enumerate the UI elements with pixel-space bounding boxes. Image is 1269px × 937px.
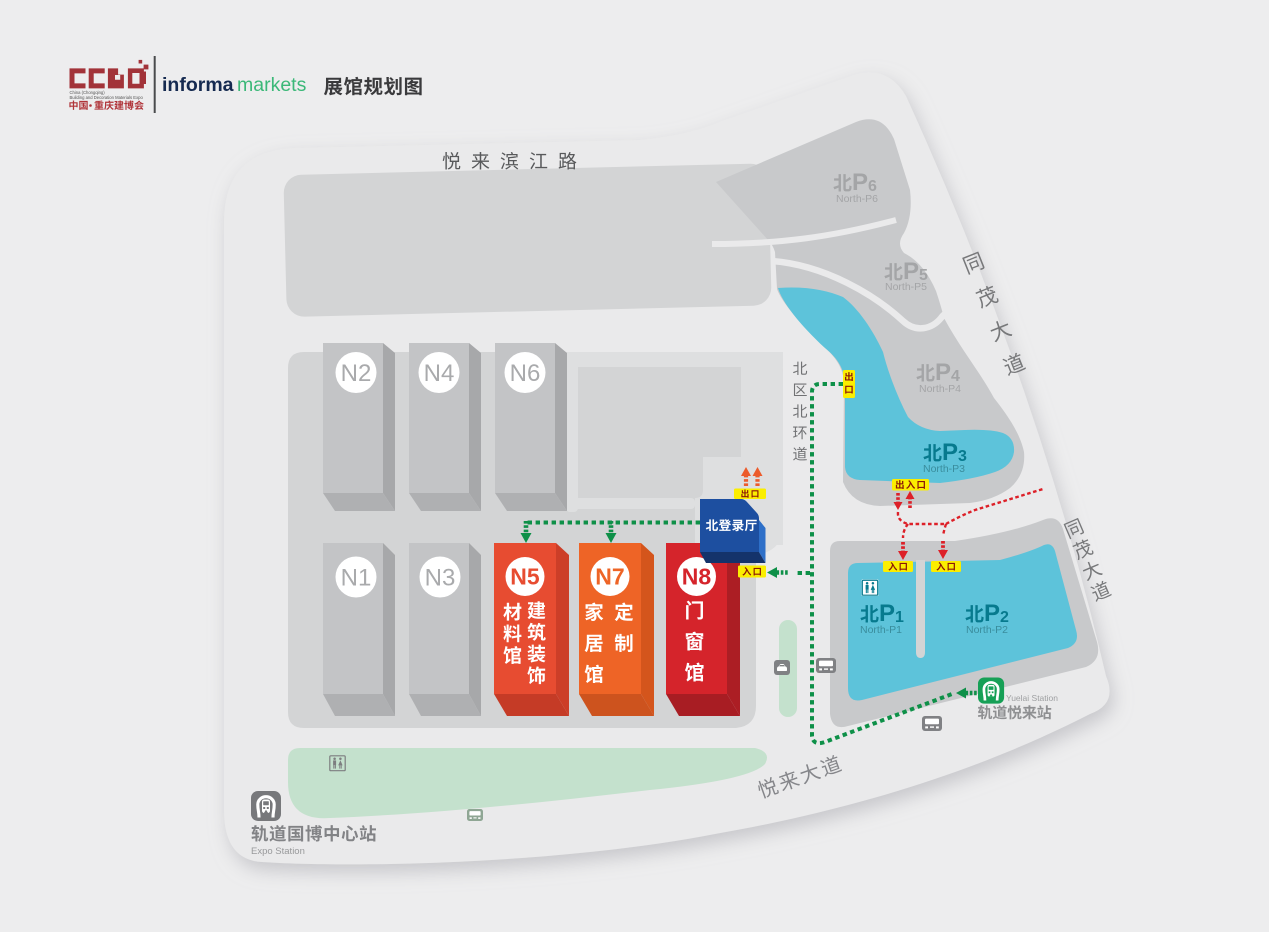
svg-text:North-P6: North-P6	[836, 193, 878, 205]
svg-text:markets: markets	[237, 74, 307, 96]
svg-text:N8: N8	[682, 564, 712, 590]
svg-text:North-P4: North-P4	[919, 383, 961, 395]
svg-text:North-P5: North-P5	[885, 281, 927, 293]
svg-text:N7: N7	[595, 564, 624, 590]
svg-text:P: P	[852, 169, 868, 196]
svg-text:informa: informa	[162, 74, 234, 96]
svg-text:Expo Station: Expo Station	[251, 846, 305, 857]
svg-text:N4: N4	[424, 360, 455, 387]
svg-text:North-P1: North-P1	[860, 624, 902, 636]
svg-text:N5: N5	[510, 564, 540, 590]
svg-text:Building and Decoration Materi: Building and Decoration Materials Expo	[70, 95, 144, 100]
svg-text:N3: N3	[425, 565, 456, 592]
svg-text:Yuelai Station: Yuelai Station	[1006, 693, 1058, 703]
svg-text:North-P2: North-P2	[966, 624, 1008, 636]
svg-text:North-P3: North-P3	[923, 463, 965, 475]
svg-text:N6: N6	[510, 360, 541, 387]
svg-text:N1: N1	[341, 565, 372, 592]
svg-text:P: P	[984, 600, 1000, 627]
svg-text:P: P	[935, 359, 951, 386]
svg-text:P: P	[942, 439, 958, 466]
svg-text:N2: N2	[341, 360, 372, 387]
svg-text:P: P	[879, 600, 895, 627]
